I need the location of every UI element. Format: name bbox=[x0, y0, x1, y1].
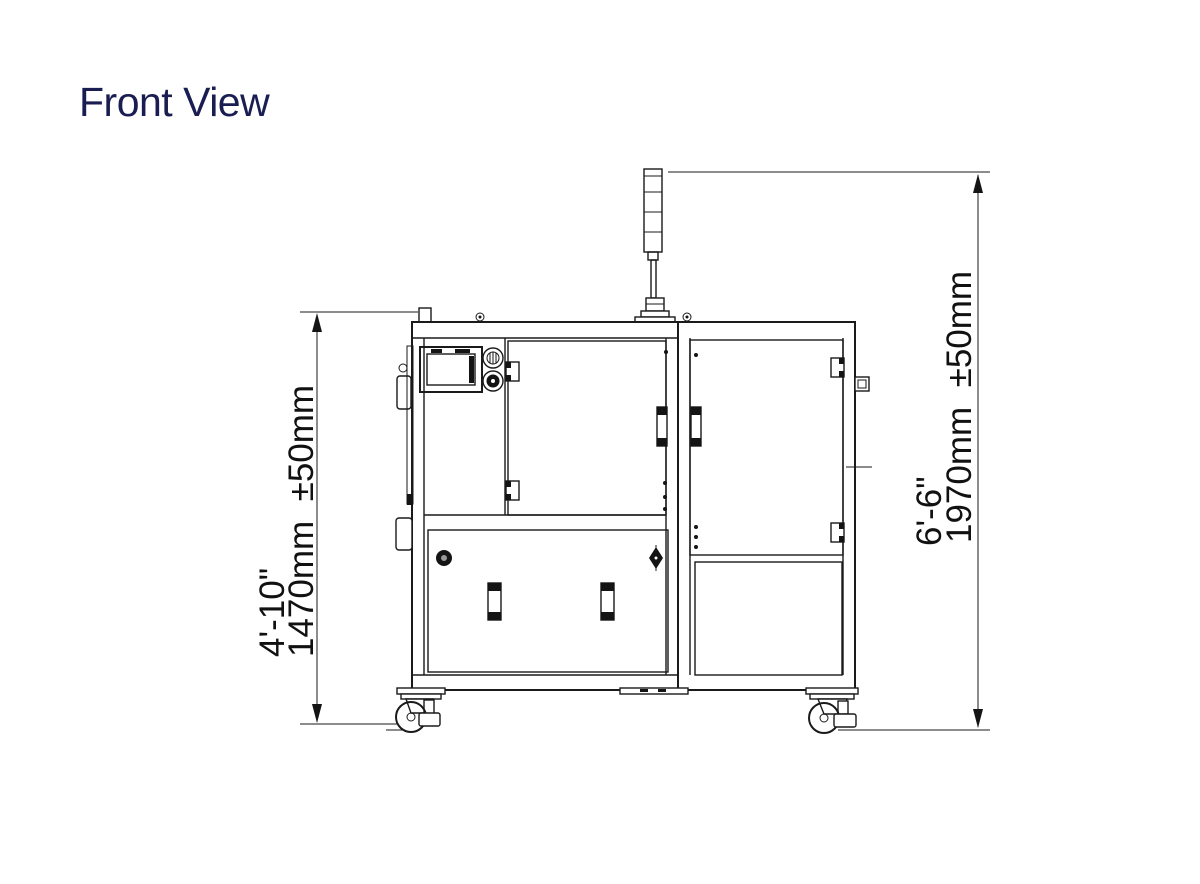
handle-end bbox=[691, 438, 701, 446]
hmi-label-strip-left bbox=[431, 349, 442, 353]
hinge-knuckle bbox=[839, 371, 844, 377]
caster-right bbox=[806, 688, 858, 733]
hinge-knuckle bbox=[839, 536, 844, 542]
right-door-panel bbox=[690, 340, 843, 555]
under-plate bbox=[620, 688, 688, 694]
hmi-screen-edge bbox=[469, 356, 474, 383]
signal-tower-stack bbox=[644, 169, 662, 252]
leveling-foot bbox=[834, 714, 856, 727]
bottom-center-plate bbox=[620, 688, 688, 694]
right-side-fittings bbox=[846, 377, 872, 467]
left-module-frame bbox=[412, 308, 678, 690]
dimension-left: 4'-10" 1470mm ±50mm bbox=[253, 312, 418, 730]
screw-dot-icon bbox=[694, 545, 698, 549]
hinge-knuckle bbox=[506, 375, 511, 381]
hinge-knuckle bbox=[839, 358, 844, 364]
screw-dot-icon bbox=[686, 316, 689, 319]
dimension-right-metric: 1970mm ±50mm bbox=[940, 271, 979, 543]
lower-cabinet-panel bbox=[428, 530, 668, 672]
screw-dot-icon bbox=[664, 350, 668, 354]
dimension-right: 6'-6" 1970mm ±50mm bbox=[668, 172, 990, 730]
latch-center bbox=[655, 557, 658, 560]
handle-end bbox=[601, 612, 614, 620]
caster-plate2 bbox=[401, 694, 441, 699]
handle-end bbox=[488, 583, 501, 591]
hinge-knuckle bbox=[506, 494, 511, 500]
handle-end bbox=[657, 438, 667, 446]
right-lower-panel bbox=[695, 562, 842, 675]
left-module-outline bbox=[412, 322, 678, 690]
lower-cabinet bbox=[428, 530, 668, 672]
screw-dot-icon bbox=[479, 316, 482, 319]
under-plate-mark bbox=[640, 689, 648, 692]
right-door bbox=[690, 340, 844, 555]
hmi-panel bbox=[420, 347, 482, 392]
side-connector bbox=[855, 377, 869, 391]
front-view-drawing: 4'-10" 1470mm ±50mm 6'-6" 1970mm ±50mm bbox=[0, 0, 1200, 884]
handle-end bbox=[601, 583, 614, 591]
right-module-frame bbox=[678, 322, 855, 690]
caster-left bbox=[396, 688, 445, 732]
left-side-brackets bbox=[396, 346, 413, 550]
right-module-outline bbox=[678, 322, 855, 690]
hinge-knuckle bbox=[506, 362, 511, 368]
knob-center bbox=[441, 555, 447, 561]
signal-tower bbox=[635, 169, 675, 322]
side-bracket bbox=[397, 376, 411, 409]
signal-tower-neck bbox=[648, 252, 658, 260]
screw-dot-icon bbox=[694, 525, 698, 529]
under-plate-mark bbox=[658, 689, 666, 692]
top-left-block bbox=[419, 308, 431, 322]
hmi-label-strip-right bbox=[455, 349, 470, 353]
dimension-left-metric: 1470mm ±50mm bbox=[282, 385, 321, 657]
caster-hub bbox=[407, 713, 415, 721]
foot-stem bbox=[838, 701, 848, 714]
screw-dot-icon bbox=[694, 353, 698, 357]
handle-end bbox=[691, 407, 701, 415]
arrowhead-up-right bbox=[973, 174, 983, 193]
hmi-screen bbox=[427, 354, 475, 385]
signal-tower-base bbox=[641, 311, 669, 317]
caster-hub bbox=[820, 714, 828, 722]
side-bracket bbox=[396, 518, 412, 550]
hinge-knuckle bbox=[839, 523, 844, 529]
screw-dot-icon bbox=[694, 535, 698, 539]
middle-door bbox=[506, 341, 668, 515]
signal-tower-pole bbox=[651, 260, 656, 298]
side-rail-tick bbox=[407, 494, 413, 505]
caster-plate bbox=[806, 688, 858, 694]
machine-front-view bbox=[396, 169, 872, 733]
side-hook bbox=[399, 364, 407, 372]
control-buttons bbox=[483, 348, 503, 391]
leveling-foot bbox=[419, 713, 440, 726]
handle-end bbox=[657, 407, 667, 415]
handle-end bbox=[488, 612, 501, 620]
arrowhead-up-left bbox=[312, 313, 322, 332]
screw-dot-icon bbox=[663, 507, 667, 511]
screw-dot-icon bbox=[663, 495, 667, 499]
middle-door-panel bbox=[508, 341, 666, 515]
screw-dot-icon bbox=[663, 481, 667, 485]
arrowhead-down-left bbox=[312, 704, 322, 723]
caster-plate bbox=[397, 688, 445, 694]
arrowhead-down-right bbox=[973, 709, 983, 728]
estop-center-dot bbox=[491, 379, 495, 383]
hinge-knuckle bbox=[506, 481, 511, 487]
caster-plate2 bbox=[810, 694, 854, 699]
front-view-page: Front View 4'-10" 1470mm ±50mm 6'-6" 197… bbox=[0, 0, 1200, 884]
